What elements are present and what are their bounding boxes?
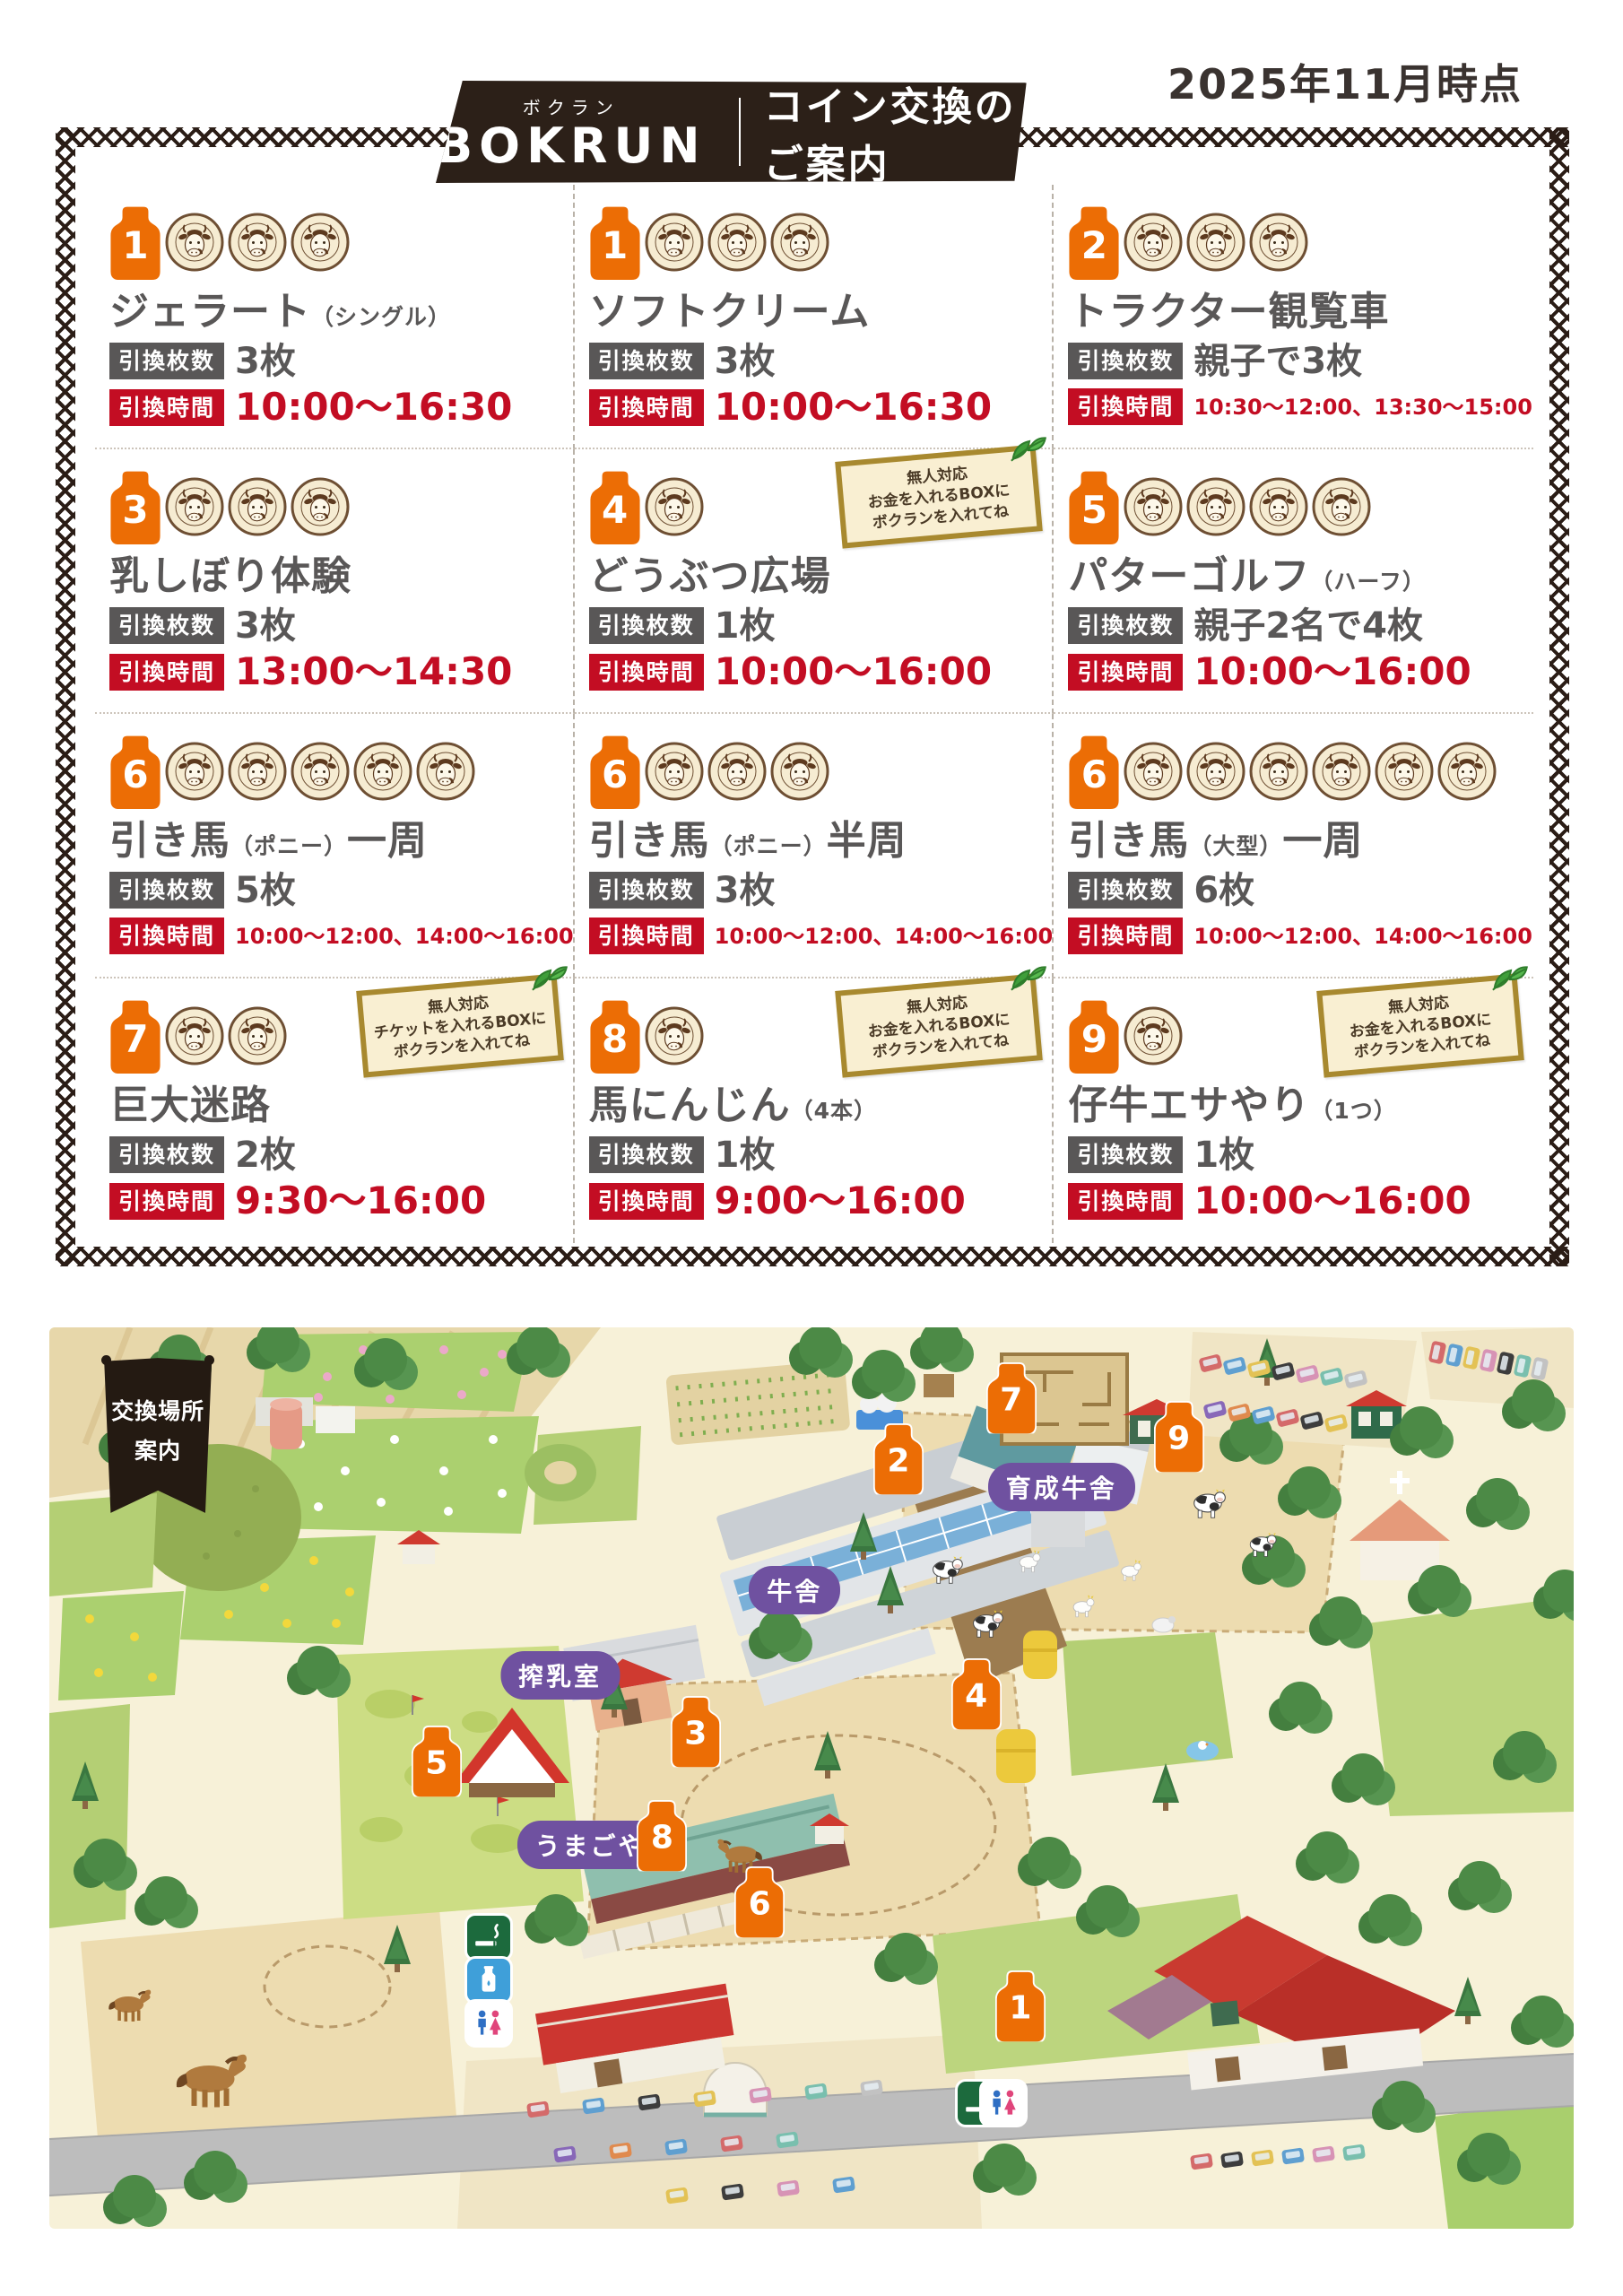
aiboku-coin-icon: AIBOKU・AIBOKU・AIBOKU [770, 742, 829, 801]
exchange-count-badge: 引換枚数 [1068, 872, 1183, 909]
item-name: ジェラート（シングル） [109, 291, 566, 334]
map-pin-number: 4 [951, 1680, 1002, 1712]
brand-name: BOKRUN [436, 122, 707, 170]
exchange-count-badge: 引換枚数 [109, 1136, 224, 1173]
aiboku-coin-icon: AIBOKU・AIBOKU・AIBOKU [645, 213, 704, 272]
unattended-note: 無人対応 お金を入れるBOXに ボクランを入れてね [836, 973, 1044, 1077]
item-number: 9 [1068, 1021, 1120, 1058]
exchange-count-badge: 引換枚数 [589, 1136, 704, 1173]
item-number: 5 [1068, 491, 1120, 529]
item-name: 引き馬（ポニー）半周 [589, 820, 1046, 863]
item-number-badge: 5 [1068, 469, 1120, 544]
leaf-icon [1002, 429, 1049, 470]
map-pin: 5 [412, 1726, 462, 1797]
exchange-count-value: 親子で3枚 [1193, 344, 1362, 379]
exchange-count-badge: 引換枚数 [1068, 607, 1183, 644]
restroom-icon [982, 2082, 1025, 2125]
aiboku-coin-icon: AIBOKU・AIBOKU・AIBOKU [1124, 213, 1183, 272]
exchange-count-value: 3枚 [715, 344, 776, 379]
exchange-time-badge: 引換時間 [1068, 388, 1183, 425]
exchange-item-card: 6 AIBOKU・AIBOKU・AIBOKU [95, 714, 575, 978]
exchange-time-value: 10:00〜12:00、14:00〜16:00 [1193, 926, 1532, 947]
exchange-time-badge: 引換時間 [109, 1183, 224, 1220]
item-number: 7 [109, 1021, 161, 1058]
item-number-badge: 6 [1068, 734, 1120, 809]
aiboku-coin-icon: AIBOKU・AIBOKU・AIBOKU [1186, 477, 1245, 536]
exchange-item-card: 9 AIBOKU・AIBOKU・AIBOKU [1054, 978, 1533, 1243]
map-pin-number: 2 [873, 1445, 924, 1477]
exchange-time-value: 10:00〜12:00、14:00〜16:00 [235, 926, 574, 947]
exchange-item-card: 8 AIBOKU・AIBOKU・AIBOKU [575, 978, 1055, 1243]
item-name: パターゴルフ（ハーフ） [1068, 555, 1526, 598]
brand: ボクラン BOKRUN [436, 93, 707, 170]
exchange-time-value: 10:00〜16:00 [1193, 1182, 1471, 1220]
brand-banner: ボクラン BOKRUN コイン交換のご案内 [436, 81, 1029, 183]
zigzag-border-bottom [56, 1247, 1569, 1266]
item-name-note: （4本） [791, 1098, 877, 1124]
item-number-badge: 6 [109, 734, 161, 809]
item-number-badge: 7 [109, 998, 161, 1074]
exchange-count-badge: 引換枚数 [109, 343, 224, 379]
exchange-time-value: 10:00〜16:30 [235, 388, 512, 426]
exchange-time-value: 10:00〜16:00 [715, 653, 992, 691]
aiboku-coin-icon: AIBOKU・AIBOKU・AIBOKU [1312, 742, 1371, 801]
item-name: 馬にんじん（4本） [589, 1084, 1046, 1127]
item-number-badge: 1 [589, 204, 641, 280]
aiboku-coin-icon: AIBOKU・AIBOKU・AIBOKU [165, 742, 224, 801]
item-number: 4 [589, 491, 641, 529]
farm-map: 交換場所 案内 育成牛舎牛舎搾乳室うまごや 1 2 3 4 5 [49, 1327, 1574, 2229]
aiboku-coin-icon: AIBOKU・AIBOKU・AIBOKU [1186, 742, 1245, 801]
exchange-count-badge: 引換枚数 [1068, 1136, 1183, 1173]
item-number-badge: 2 [1068, 204, 1120, 280]
item-number-badge: 1 [109, 204, 161, 280]
exchange-item-card: 7 AIBOKU・AIBOKU・AIBOKU [95, 978, 575, 1243]
map-pin-number: 7 [986, 1385, 1037, 1417]
item-number-badge: 9 [1068, 998, 1120, 1074]
aiboku-coin-icon: AIBOKU・AIBOKU・AIBOKU [1186, 213, 1245, 272]
item-number-badge: 6 [589, 734, 641, 809]
aiboku-coin-icon: AIBOKU・AIBOKU・AIBOKU [228, 213, 287, 272]
unattended-note: 無人対応 お金を入れるBOXに ボクランを入れてね [1316, 973, 1524, 1077]
map-pin: 8 [637, 1799, 687, 1871]
exchange-count-badge: 引換枚数 [589, 343, 704, 379]
exchange-count-value: 1枚 [1193, 1137, 1254, 1173]
exchange-count-value: 1枚 [715, 1137, 776, 1173]
item-name: 引き馬（ポニー）一周 [109, 820, 566, 863]
exchange-count-value: 2枚 [235, 1137, 296, 1173]
map-pin-number: 3 [671, 1718, 721, 1751]
divider [739, 98, 741, 166]
item-name-note: （ハーフ） [1310, 569, 1426, 595]
exchange-time-value: 9:30〜16:00 [235, 1182, 486, 1220]
aiboku-coin-icon: AIBOKU・AIBOKU・AIBOKU [770, 213, 829, 272]
item-name: トラクター観覧車 [1068, 291, 1526, 334]
exchange-item-card: 3 AIBOKU・AIBOKU・AIBOKU [95, 449, 575, 714]
aiboku-coin-icon: AIBOKU・AIBOKU・AIBOKU [1124, 477, 1183, 536]
exchange-count-value: 3枚 [715, 873, 776, 909]
item-number: 6 [1068, 756, 1120, 794]
exchange-time-badge: 引換時間 [1068, 1183, 1183, 1220]
exchange-count-badge: 引換枚数 [109, 607, 224, 644]
map-pin-number: 5 [412, 1748, 462, 1780]
map-location-label: 育成牛舎 [988, 1463, 1135, 1511]
aiboku-coin-icon: AIBOKU・AIBOKU・AIBOKU [1249, 213, 1308, 272]
exchange-time-badge: 引換時間 [1068, 918, 1183, 954]
map-pin: 3 [671, 1696, 721, 1768]
map-location-label: 搾乳室 [500, 1651, 620, 1700]
map-pin: 2 [873, 1422, 924, 1494]
leaf-icon [523, 958, 570, 999]
leaf-icon [1002, 958, 1049, 999]
exchange-item-card: 1 AIBOKU・AIBOKU・AIBOKU [575, 185, 1055, 449]
map-location-label: 牛舎 [749, 1566, 840, 1614]
aiboku-coin-icon: AIBOKU・AIBOKU・AIBOKU [1375, 742, 1434, 801]
aiboku-coin-icon: AIBOKU・AIBOKU・AIBOKU [291, 477, 350, 536]
aiboku-coin-icon: AIBOKU・AIBOKU・AIBOKU [1249, 742, 1308, 801]
aiboku-coin-icon: AIBOKU・AIBOKU・AIBOKU [165, 1006, 224, 1065]
exchange-count-badge: 引換枚数 [1068, 343, 1183, 379]
item-name: 乳しぼり体験 [109, 555, 566, 598]
exchange-time-value: 9:00〜16:00 [715, 1182, 966, 1220]
aiboku-coin-icon: AIBOKU・AIBOKU・AIBOKU [645, 477, 704, 536]
map-pin-number: 1 [995, 1992, 1046, 2024]
aiboku-coin-icon: AIBOKU・AIBOKU・AIBOKU [707, 742, 767, 801]
coupon-board: 1 AIBOKU・AIBOKU・AIBOKU [56, 127, 1569, 1266]
item-name: 引き馬（大型）一周 [1068, 820, 1526, 863]
map-pin: 7 [986, 1362, 1037, 1434]
map-pin: 9 [1154, 1400, 1204, 1472]
item-number: 3 [109, 491, 161, 529]
brand-furigana: ボクラン [523, 93, 620, 119]
unattended-note: 無人対応 お金を入れるBOXに ボクランを入れてね [836, 444, 1044, 548]
exchange-time-badge: 引換時間 [589, 1183, 704, 1220]
aiboku-coin-icon: AIBOKU・AIBOKU・AIBOKU [416, 742, 475, 801]
exchange-item-card: 4 AIBOKU・AIBOKU・AIBOKU [575, 449, 1055, 714]
item-number: 1 [109, 227, 161, 265]
exchange-items-grid: 1 AIBOKU・AIBOKU・AIBOKU [95, 185, 1533, 1243]
map-scene-illustration [49, 1327, 1574, 2229]
exchange-time-badge: 引換時間 [109, 389, 224, 426]
exchange-time-badge: 引換時間 [589, 389, 704, 426]
map-pin-number: 6 [734, 1889, 785, 1921]
map-pin-number: 9 [1154, 1422, 1204, 1455]
map-pin: 6 [734, 1866, 785, 1938]
exchange-item-card: 2 AIBOKU・AIBOKU・AIBOKU [1054, 185, 1533, 449]
exchange-count-value: 3枚 [235, 608, 296, 644]
item-name: 巨大迷路 [109, 1084, 566, 1127]
map-banner-line1: 交換場所 [111, 1394, 204, 1426]
aiboku-coin-icon: AIBOKU・AIBOKU・AIBOKU [1437, 742, 1497, 801]
exchange-time-value: 10:00〜16:30 [715, 388, 992, 426]
exchange-time-value: 10:00〜12:00、14:00〜16:00 [715, 926, 1054, 947]
aiboku-coin-icon: AIBOKU・AIBOKU・AIBOKU [291, 742, 350, 801]
exchange-count-value: 親子2名で4枚 [1193, 608, 1423, 644]
baby-milk-icon [467, 1959, 510, 2002]
exchange-time-badge: 引換時間 [589, 654, 704, 691]
map-pin: 4 [951, 1657, 1002, 1729]
aiboku-coin-icon: AIBOKU・AIBOKU・AIBOKU [1124, 742, 1183, 801]
date-note: 2025年11月時点 [1167, 52, 1523, 111]
aiboku-coin-icon: AIBOKU・AIBOKU・AIBOKU [1124, 1006, 1183, 1065]
aiboku-coin-icon: AIBOKU・AIBOKU・AIBOKU [291, 213, 350, 272]
aiboku-coin-icon: AIBOKU・AIBOKU・AIBOKU [1312, 477, 1371, 536]
exchange-count-value: 6枚 [1193, 873, 1254, 909]
smoking-area-icon [467, 1916, 510, 1959]
item-number: 2 [1068, 227, 1120, 265]
zigzag-border-right [1549, 127, 1569, 1266]
exchange-time-value: 13:00〜14:30 [235, 653, 512, 691]
aiboku-coin-icon: AIBOKU・AIBOKU・AIBOKU [165, 213, 224, 272]
exchange-time-badge: 引換時間 [589, 918, 704, 954]
exchange-time-badge: 引換時間 [1068, 654, 1183, 691]
map-banner: 交換場所 案内 [104, 1358, 212, 1518]
item-name: 仔牛エサやり（1つ） [1068, 1084, 1526, 1127]
aiboku-coin-icon: AIBOKU・AIBOKU・AIBOKU [228, 477, 287, 536]
exchange-time-badge: 引換時間 [109, 654, 224, 691]
aiboku-coin-icon: AIBOKU・AIBOKU・AIBOKU [645, 1006, 704, 1065]
exchange-time-value: 10:30〜12:00、13:30〜15:00 [1193, 396, 1532, 418]
aiboku-coin-icon: AIBOKU・AIBOKU・AIBOKU [707, 213, 767, 272]
item-number: 6 [589, 756, 641, 794]
exchange-count-value: 1枚 [715, 608, 776, 644]
item-number-badge: 3 [109, 469, 161, 544]
item-name-note: （大型） [1189, 833, 1282, 859]
item-name: ソフトクリーム [589, 291, 1046, 334]
exchange-count-badge: 引換枚数 [589, 872, 704, 909]
item-name: どうぶつ広場 [589, 555, 1046, 598]
exchange-item-card: 5 AIBOKU・AIBOKU・AIBOKU [1054, 449, 1533, 714]
item-number-badge: 4 [589, 469, 641, 544]
exchange-count-value: 3枚 [235, 344, 296, 379]
exchange-time-badge: 引換時間 [109, 918, 224, 954]
item-name-note: （ポニー） [230, 833, 347, 859]
item-number: 1 [589, 227, 641, 265]
exchange-count-badge: 引換枚数 [109, 872, 224, 909]
item-number-badge: 8 [589, 998, 641, 1074]
flyer-page: 2025年11月時点 1 [0, 0, 1623, 2296]
item-name-note: （シングル） [311, 304, 451, 330]
aiboku-coin-icon: AIBOKU・AIBOKU・AIBOKU [645, 742, 704, 801]
exchange-item-card: 1 AIBOKU・AIBOKU・AIBOKU [95, 185, 575, 449]
exchange-count-badge: 引換枚数 [589, 607, 704, 644]
aiboku-coin-icon: AIBOKU・AIBOKU・AIBOKU [353, 742, 412, 801]
exchange-count-value: 5枚 [235, 873, 296, 909]
item-number: 6 [109, 756, 161, 794]
restroom-icon [467, 2002, 510, 2045]
item-number: 8 [589, 1021, 641, 1058]
aiboku-coin-icon: AIBOKU・AIBOKU・AIBOKU [228, 1006, 287, 1065]
unattended-note: 無人対応 チケットを入れるBOXに ボクランを入れてね [356, 973, 564, 1077]
exchange-item-card: 6 AIBOKU・AIBOKU・AIBOKU [575, 714, 1055, 978]
zigzag-border-left [56, 127, 75, 1266]
leaf-icon [1483, 958, 1531, 999]
item-name-note: （ポニー） [710, 833, 827, 859]
map-pin-number: 8 [637, 1822, 687, 1854]
page-title: コイン交換のご案内 [764, 74, 1029, 189]
exchange-time-value: 10:00〜16:00 [1193, 653, 1471, 691]
aiboku-coin-icon: AIBOKU・AIBOKU・AIBOKU [228, 742, 287, 801]
map-banner-line2: 案内 [135, 1433, 181, 1465]
item-name-note: （1つ） [1310, 1098, 1396, 1124]
exchange-item-card: 6 AIBOKU・AIBOKU・AIBOKU [1054, 714, 1533, 978]
aiboku-coin-icon: AIBOKU・AIBOKU・AIBOKU [165, 477, 224, 536]
aiboku-coin-icon: AIBOKU・AIBOKU・AIBOKU [1249, 477, 1308, 536]
map-pin: 1 [995, 1970, 1046, 2041]
